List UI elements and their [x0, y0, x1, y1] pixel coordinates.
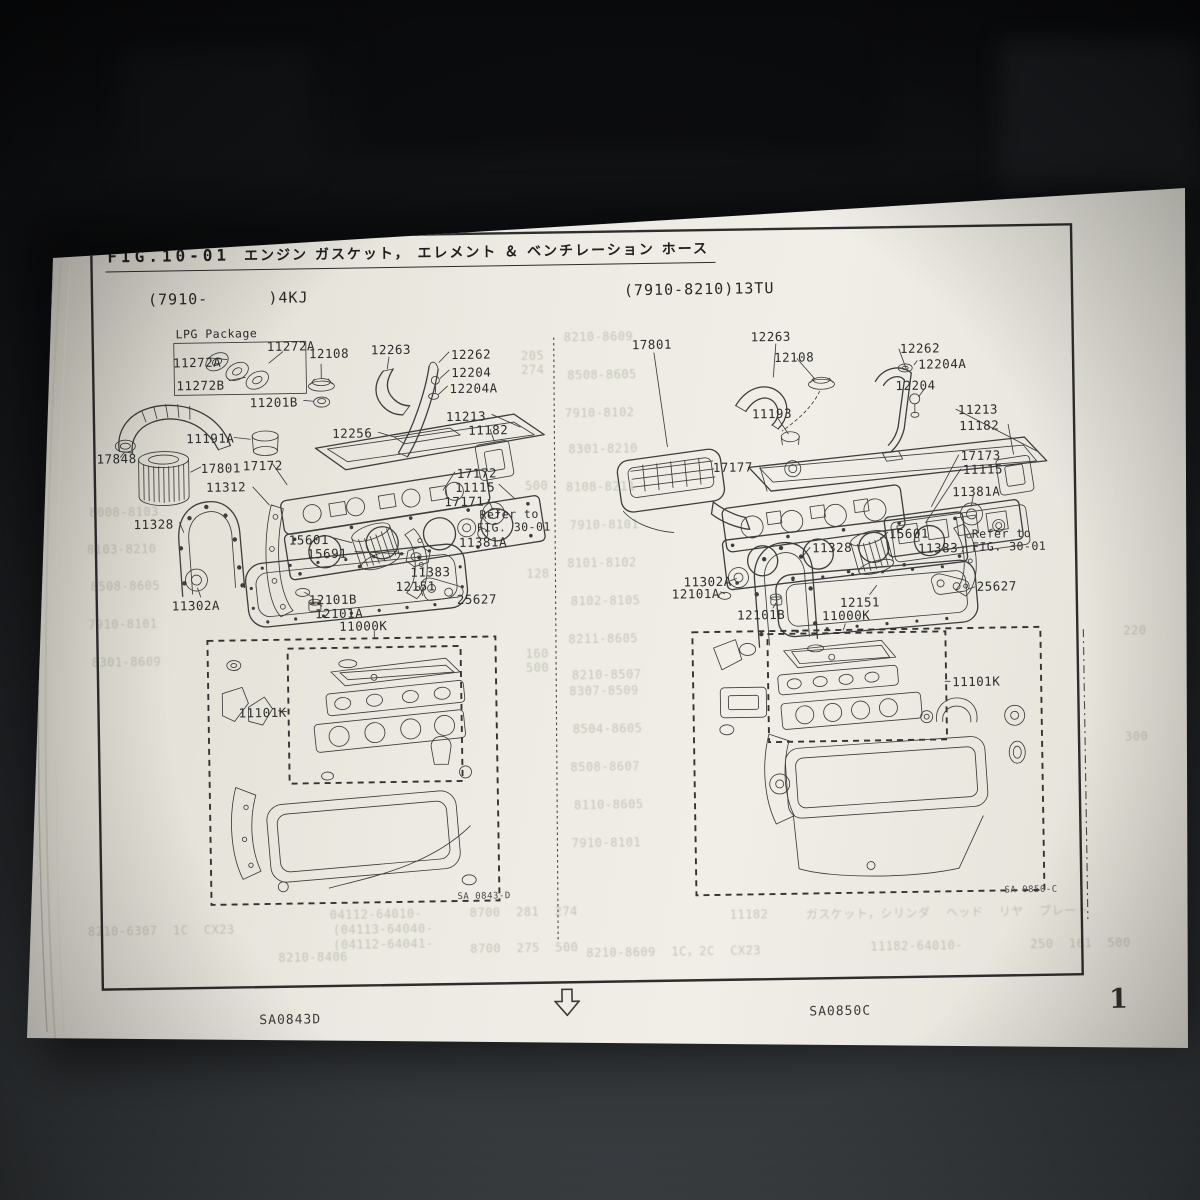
part-label: 15601 [889, 526, 929, 542]
part-label: 17801 [632, 337, 672, 353]
ghost-text: ガスケット，シリンダ ヘッド リヤ プレート [806, 901, 1090, 922]
part-label: 11383 [410, 564, 450, 580]
background-shape [1000, 40, 1200, 190]
ghost-text: 8700 281 274 [470, 904, 578, 920]
ghost-text: 8508-8607 [570, 759, 640, 774]
ghost-text: 8508-8605 [90, 579, 160, 594]
part-label: 11383 [918, 540, 958, 556]
page-number: 1 [1109, 984, 1128, 1015]
refer-note: FIG. 30-01 [477, 520, 551, 535]
part-label: 12262 [451, 346, 491, 362]
part-label: 12263 [371, 342, 411, 358]
ghost-text: 128 [526, 567, 549, 581]
ghost-text: 8508-8605 [567, 367, 637, 382]
valve-cover-gasket-drawing [748, 428, 1047, 492]
part-label: 11182 [468, 422, 508, 438]
part-label: 11201B [250, 394, 298, 410]
part-label: 11115 [963, 461, 1003, 477]
ghost-text: 8101-8102 [567, 555, 637, 570]
ghost-text: 8210-8609 1C，2C CX23 [586, 941, 761, 961]
part-label: 12204 [451, 364, 491, 380]
lpg-package-label: LPG Package [175, 326, 257, 341]
part-label: 11312 [206, 479, 246, 495]
ghost-text: 8307-8509 [569, 683, 639, 698]
part-label: 12101B [737, 607, 785, 623]
part-label: 11328 [812, 540, 852, 556]
ghost-text: 8301-8210 [568, 441, 638, 456]
ghost-text: 500 [525, 479, 548, 493]
part-label: 11213 [958, 401, 998, 417]
ghost-text: 04112-64010- [330, 907, 423, 922]
ghost-text: 11182 [730, 907, 769, 922]
air-duct-drawing [118, 404, 230, 454]
part-label: 11191A [186, 430, 234, 446]
plate-code: SA 0850-C [1004, 885, 1057, 896]
part-label: 12101A [672, 586, 720, 602]
part-label: 12151 [395, 578, 435, 594]
ghost-text: 8301-8609 [92, 655, 162, 670]
ghost-text: 8504-8605 [573, 721, 643, 736]
kit-label: 11101K [952, 673, 1000, 689]
part-label: 11193 [752, 406, 792, 422]
gasket-kit-contents [713, 635, 1027, 878]
ghost-text: 7910-8101 [572, 835, 642, 850]
gasket-kit-box [692, 627, 1044, 895]
oil-filter-drawing [138, 451, 189, 506]
ghost-text: 205 [521, 349, 544, 363]
ghost-text: 500 [526, 661, 549, 675]
ghost-text: 8108-8211 [566, 479, 636, 494]
ghost-text: (04113-64040- [333, 921, 434, 937]
catalog-page: 8210-8609 8508-8605 7910-8102 8301-8210 … [25, 182, 1193, 1058]
background-shape [120, 50, 310, 180]
part-label: 11302A [172, 598, 220, 614]
ghost-text: 8110-8605 [574, 797, 644, 812]
part-label: 17848 [96, 451, 136, 467]
ghost-text: 7910-8101 [570, 517, 640, 532]
ghost-text: 8210-8406 [278, 950, 348, 965]
part-label: 11272A [173, 355, 221, 371]
background-shape [360, 0, 880, 150]
footer-left-code: SA0843D [259, 1012, 321, 1028]
footer-right-code: SA0850C [809, 1004, 871, 1020]
ghost-text: 160 [526, 647, 549, 661]
part-label: 11115 [455, 479, 495, 495]
part-label: 11182 [959, 417, 999, 433]
part-label: 25627 [457, 591, 497, 607]
gasket-kit-contents [222, 657, 477, 893]
part-label: 12204A [918, 356, 966, 372]
part-label: 12262 [900, 340, 940, 356]
kit-label: 11000K [339, 618, 387, 634]
part-label: 11328 [133, 516, 173, 532]
ghost-text: 8103-8210 [87, 542, 157, 557]
gasket-kit-box [207, 636, 499, 904]
ghost-text: 274 [521, 363, 544, 377]
left-variant-header: (7910- )4KJ [148, 288, 309, 309]
part-label: 12204 [895, 377, 935, 393]
figure-caption: エンジン ガスケット， エレメント ＆ ベンチレーション ホース [244, 241, 709, 264]
part-label: 12108 [774, 349, 814, 365]
timing-cover-gasket-drawing [754, 542, 818, 647]
right-leader-lines [654, 340, 1040, 686]
ghost-text: 7910-8102 [565, 405, 635, 420]
kit-label: 11000K [822, 608, 870, 624]
vent-tube-drawing [397, 362, 439, 457]
refer-note: FIG. 30-01 [972, 539, 1046, 554]
printed-page-content: 8210-8609 8508-8605 7910-8102 8301-8210 … [18, 173, 1200, 1067]
ghost-text: 300 [1125, 729, 1148, 743]
kit-label: 11101K [238, 705, 286, 721]
ghost-text: 7910-8101 [88, 617, 158, 632]
part-label: 12204A [449, 380, 497, 396]
valve-cover-gasket-drawing [315, 414, 545, 471]
oil-cap-drawing [308, 378, 334, 391]
part-label: 25627 [977, 578, 1017, 594]
part-label: 11381A [459, 534, 507, 550]
part-label: 17177 [713, 459, 753, 475]
ghost-text: 8211-8605 [568, 631, 638, 646]
part-label: 12108 [309, 346, 349, 362]
timing-cover-gasket-drawing [178, 501, 245, 596]
vent-hose-drawing [376, 369, 410, 416]
part-label: 12263 [751, 329, 791, 345]
ghost-text: (04112-64041- [333, 936, 434, 952]
ghost-text: 8102-8105 [571, 593, 641, 608]
part-label: 11381A [952, 483, 1000, 499]
part-label: 12256 [332, 425, 372, 441]
part-label: 15691 [307, 546, 347, 562]
right-variant-header: (7910-8210)13TU [624, 279, 775, 299]
ghost-text: 8210-6307 1C CX23 [88, 923, 235, 939]
ghost-text: 8700 275 500 [470, 940, 578, 956]
part-label: 17172 [243, 458, 283, 474]
oil-cap-drawing [781, 377, 835, 431]
plate-code: SA 0843-D [457, 891, 510, 902]
ghost-text: 8210-8507 [572, 667, 642, 682]
part-label: 17801 [201, 460, 241, 476]
ghost-text: 8210-8609 [564, 329, 634, 344]
page-turn-arrow-icon [554, 988, 580, 1016]
ghost-text: 11182-64010- [870, 938, 963, 953]
part-label: 11272B [176, 378, 224, 394]
ghost-text: 250 161 500 [1030, 935, 1131, 951]
ghost-text: 220 [1123, 623, 1146, 637]
